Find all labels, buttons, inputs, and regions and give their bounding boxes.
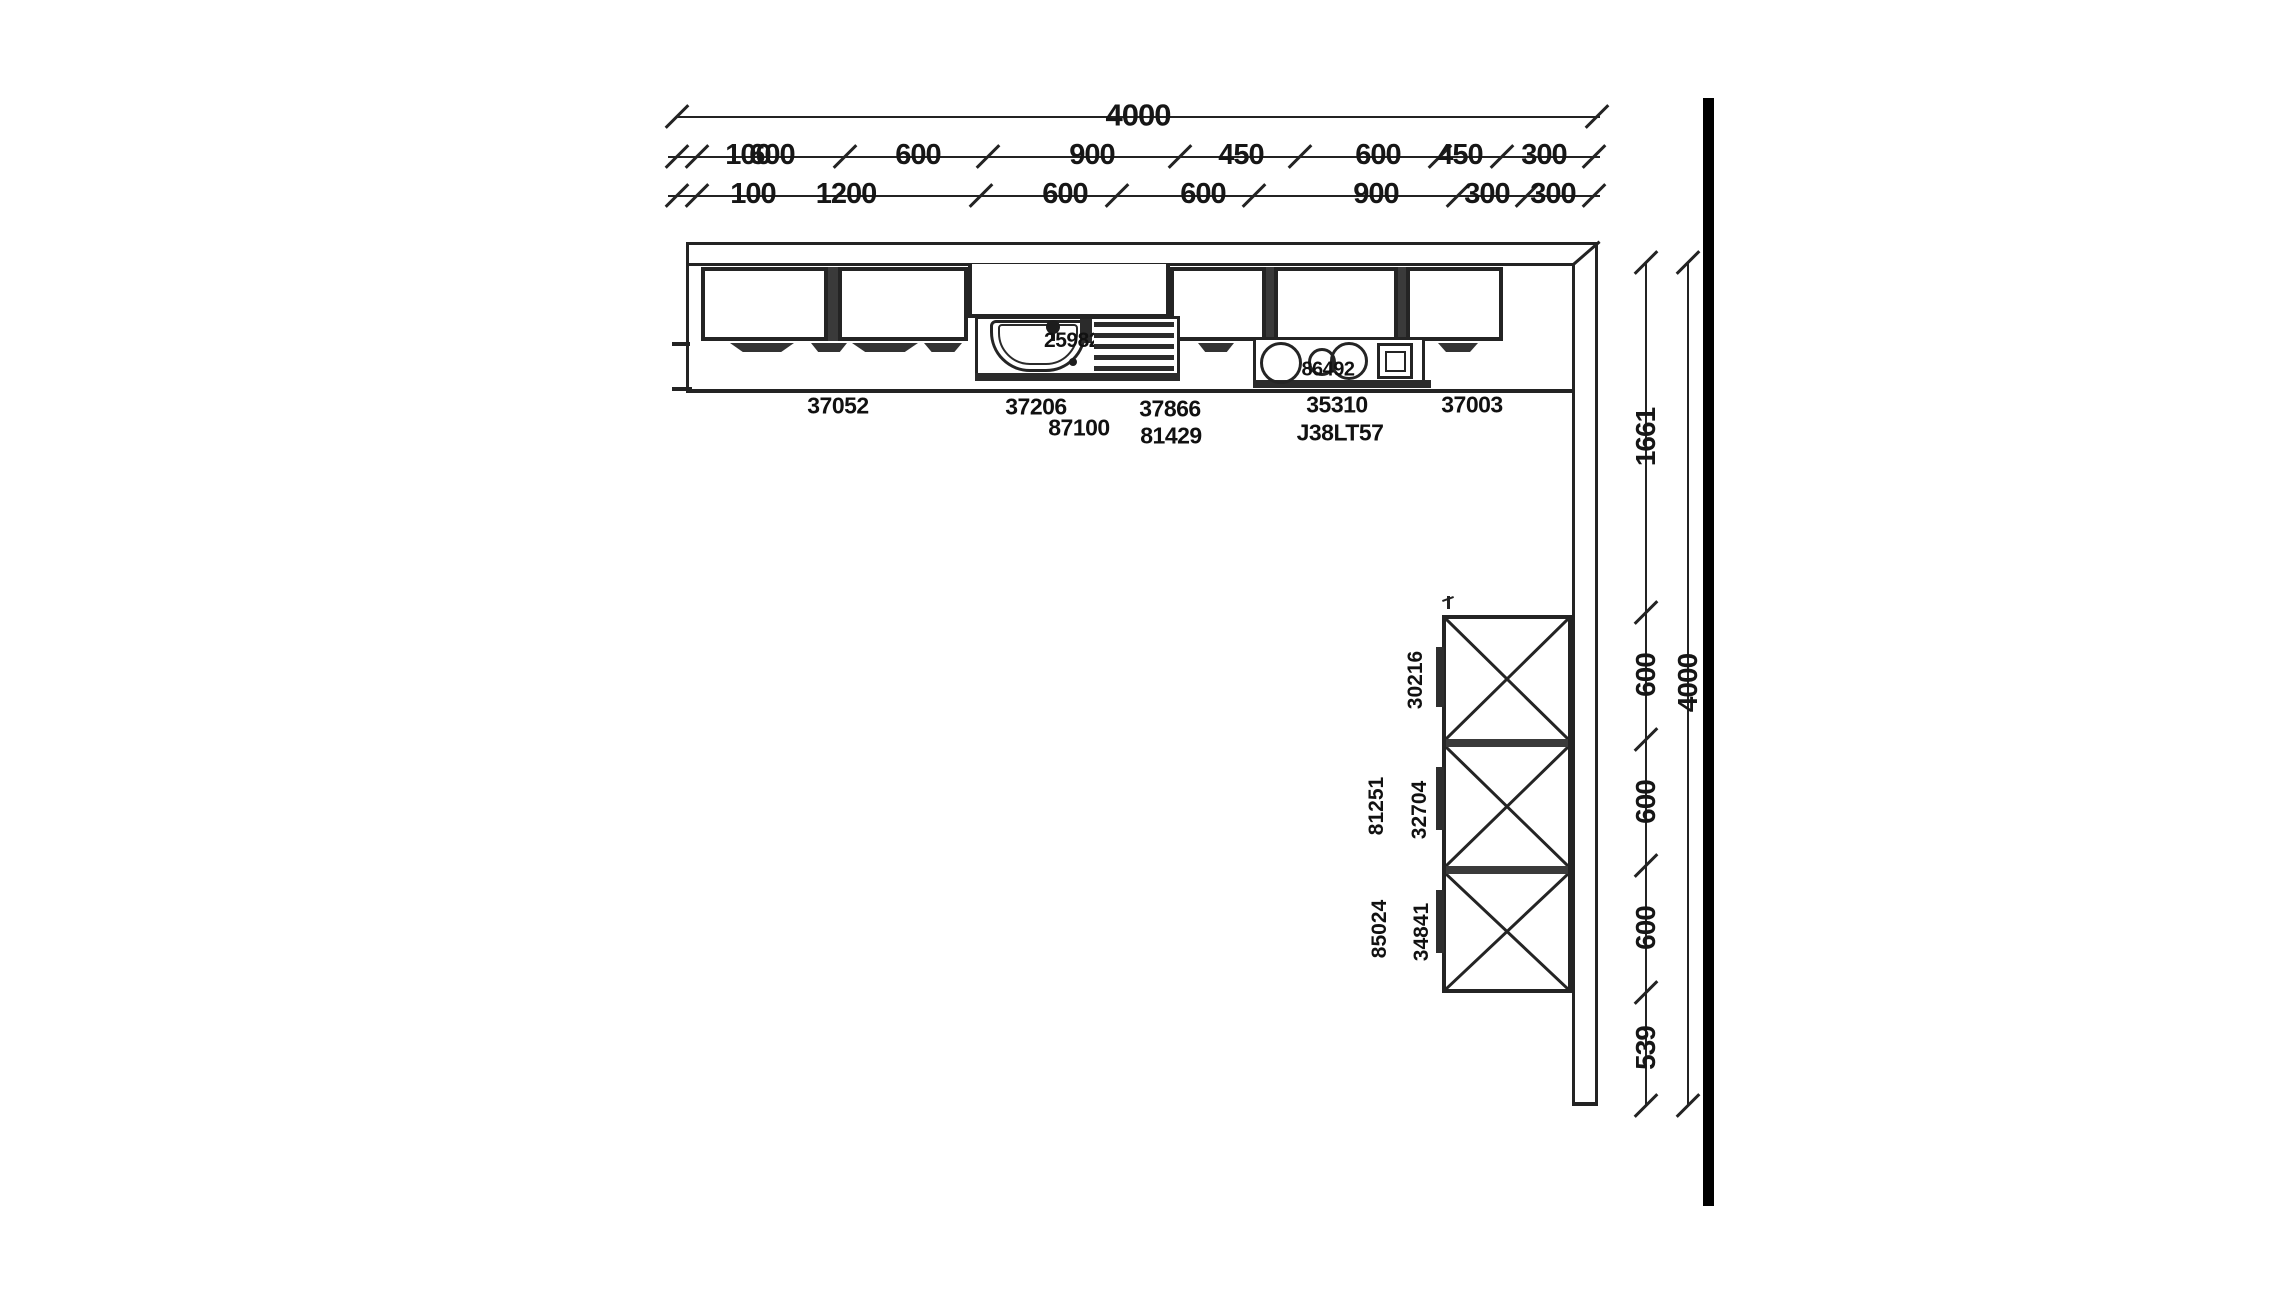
left-ref-dash xyxy=(672,387,692,391)
worktop-top-edge xyxy=(686,242,1597,245)
dim-value: 300 xyxy=(1530,178,1575,211)
dim-value: 450 xyxy=(1437,139,1482,172)
item-code: 81429 xyxy=(1140,423,1201,450)
dim-value: 600 xyxy=(1630,780,1662,824)
wall-cabinet xyxy=(701,267,828,341)
dim-value: 600 xyxy=(1630,906,1662,950)
tall-unit-code: 32704 xyxy=(1408,781,1432,839)
dim-value: 1200 xyxy=(816,178,877,211)
item-code: 35310 xyxy=(1306,392,1367,419)
tall-unit-code: 34841 xyxy=(1410,903,1434,961)
drain-dot xyxy=(1069,358,1077,366)
tall-unit-separator xyxy=(1446,739,1568,747)
dim-value: 100 xyxy=(730,178,775,211)
item-code: 37866 xyxy=(1139,396,1200,423)
item-code: 37052 xyxy=(807,393,868,420)
cooktop-code-label: 86492 xyxy=(1301,359,1354,382)
cabinet-divider xyxy=(828,267,838,341)
wall-cabinet xyxy=(1170,267,1266,341)
burner-icon xyxy=(1260,342,1302,384)
worktop-left-edge xyxy=(686,242,689,392)
dim-value: 600 xyxy=(749,139,794,172)
cabinet-divider xyxy=(1398,267,1406,341)
dim-value: 600 xyxy=(1355,139,1400,172)
sink-enclosure-front xyxy=(975,373,1180,381)
item-code: 87100 xyxy=(1048,415,1109,442)
tall-unit-separator xyxy=(1446,866,1568,874)
left-ref-dash xyxy=(672,342,690,346)
worktop-right-inner-edge xyxy=(1572,264,1575,1105)
kitchen-plan-drawing: 4000 100 600 600 900 450 600 450 300 100… xyxy=(0,0,2273,1305)
sink-code-label: 25982 xyxy=(1044,329,1100,353)
door-handle xyxy=(924,343,962,352)
tall-unit-x-mark xyxy=(1446,874,1568,989)
dim-value-overall-top: 4000 xyxy=(1106,98,1171,134)
niche-panel xyxy=(968,264,1170,318)
door-handle xyxy=(852,343,918,352)
drainer-hatch xyxy=(1094,322,1174,372)
tall-unit-code: 30216 xyxy=(1404,651,1428,709)
tall-door-handle xyxy=(1436,647,1444,707)
dim-value: 300 xyxy=(1521,139,1566,172)
dim-value: 450 xyxy=(1218,139,1263,172)
dim-value: 300 xyxy=(1464,178,1509,211)
wall-line xyxy=(1703,98,1714,1206)
tall-door-handle xyxy=(1436,890,1444,953)
control-panel-inner xyxy=(1385,351,1406,372)
door-handle xyxy=(1438,343,1478,352)
dim-value: 539 xyxy=(1630,1026,1662,1070)
dim-value-overall-right: 4000 xyxy=(1672,654,1704,712)
dim-value: 900 xyxy=(1069,139,1114,172)
dim-value: 900 xyxy=(1353,178,1398,211)
wall-cabinet xyxy=(1274,267,1398,341)
dim-value: 600 xyxy=(1630,653,1662,697)
wall-cabinet xyxy=(838,267,968,341)
tall-unit-inner-code: 85024 xyxy=(1368,900,1392,958)
tall-unit-inner-code: 81251 xyxy=(1365,777,1389,835)
dim-value: 600 xyxy=(895,139,940,172)
tall-unit-x-mark xyxy=(1446,747,1568,866)
dim-value: 1661 xyxy=(1630,408,1662,466)
tall-door-handle xyxy=(1436,767,1444,830)
wall-cabinet xyxy=(1406,267,1503,341)
item-code: J38LT57 xyxy=(1297,420,1384,447)
worktop-right-outer-edge xyxy=(1595,243,1598,1105)
dim-value: 600 xyxy=(1042,178,1087,211)
dim-value: 600 xyxy=(1180,178,1225,211)
item-code: 37003 xyxy=(1441,392,1502,419)
door-handle xyxy=(811,343,847,352)
tall-unit-x-mark xyxy=(1446,619,1568,739)
door-handle xyxy=(730,343,794,352)
worktop-bottom-cap xyxy=(1572,1102,1598,1106)
door-handle xyxy=(1198,343,1234,352)
cabinet-divider xyxy=(1266,267,1274,341)
